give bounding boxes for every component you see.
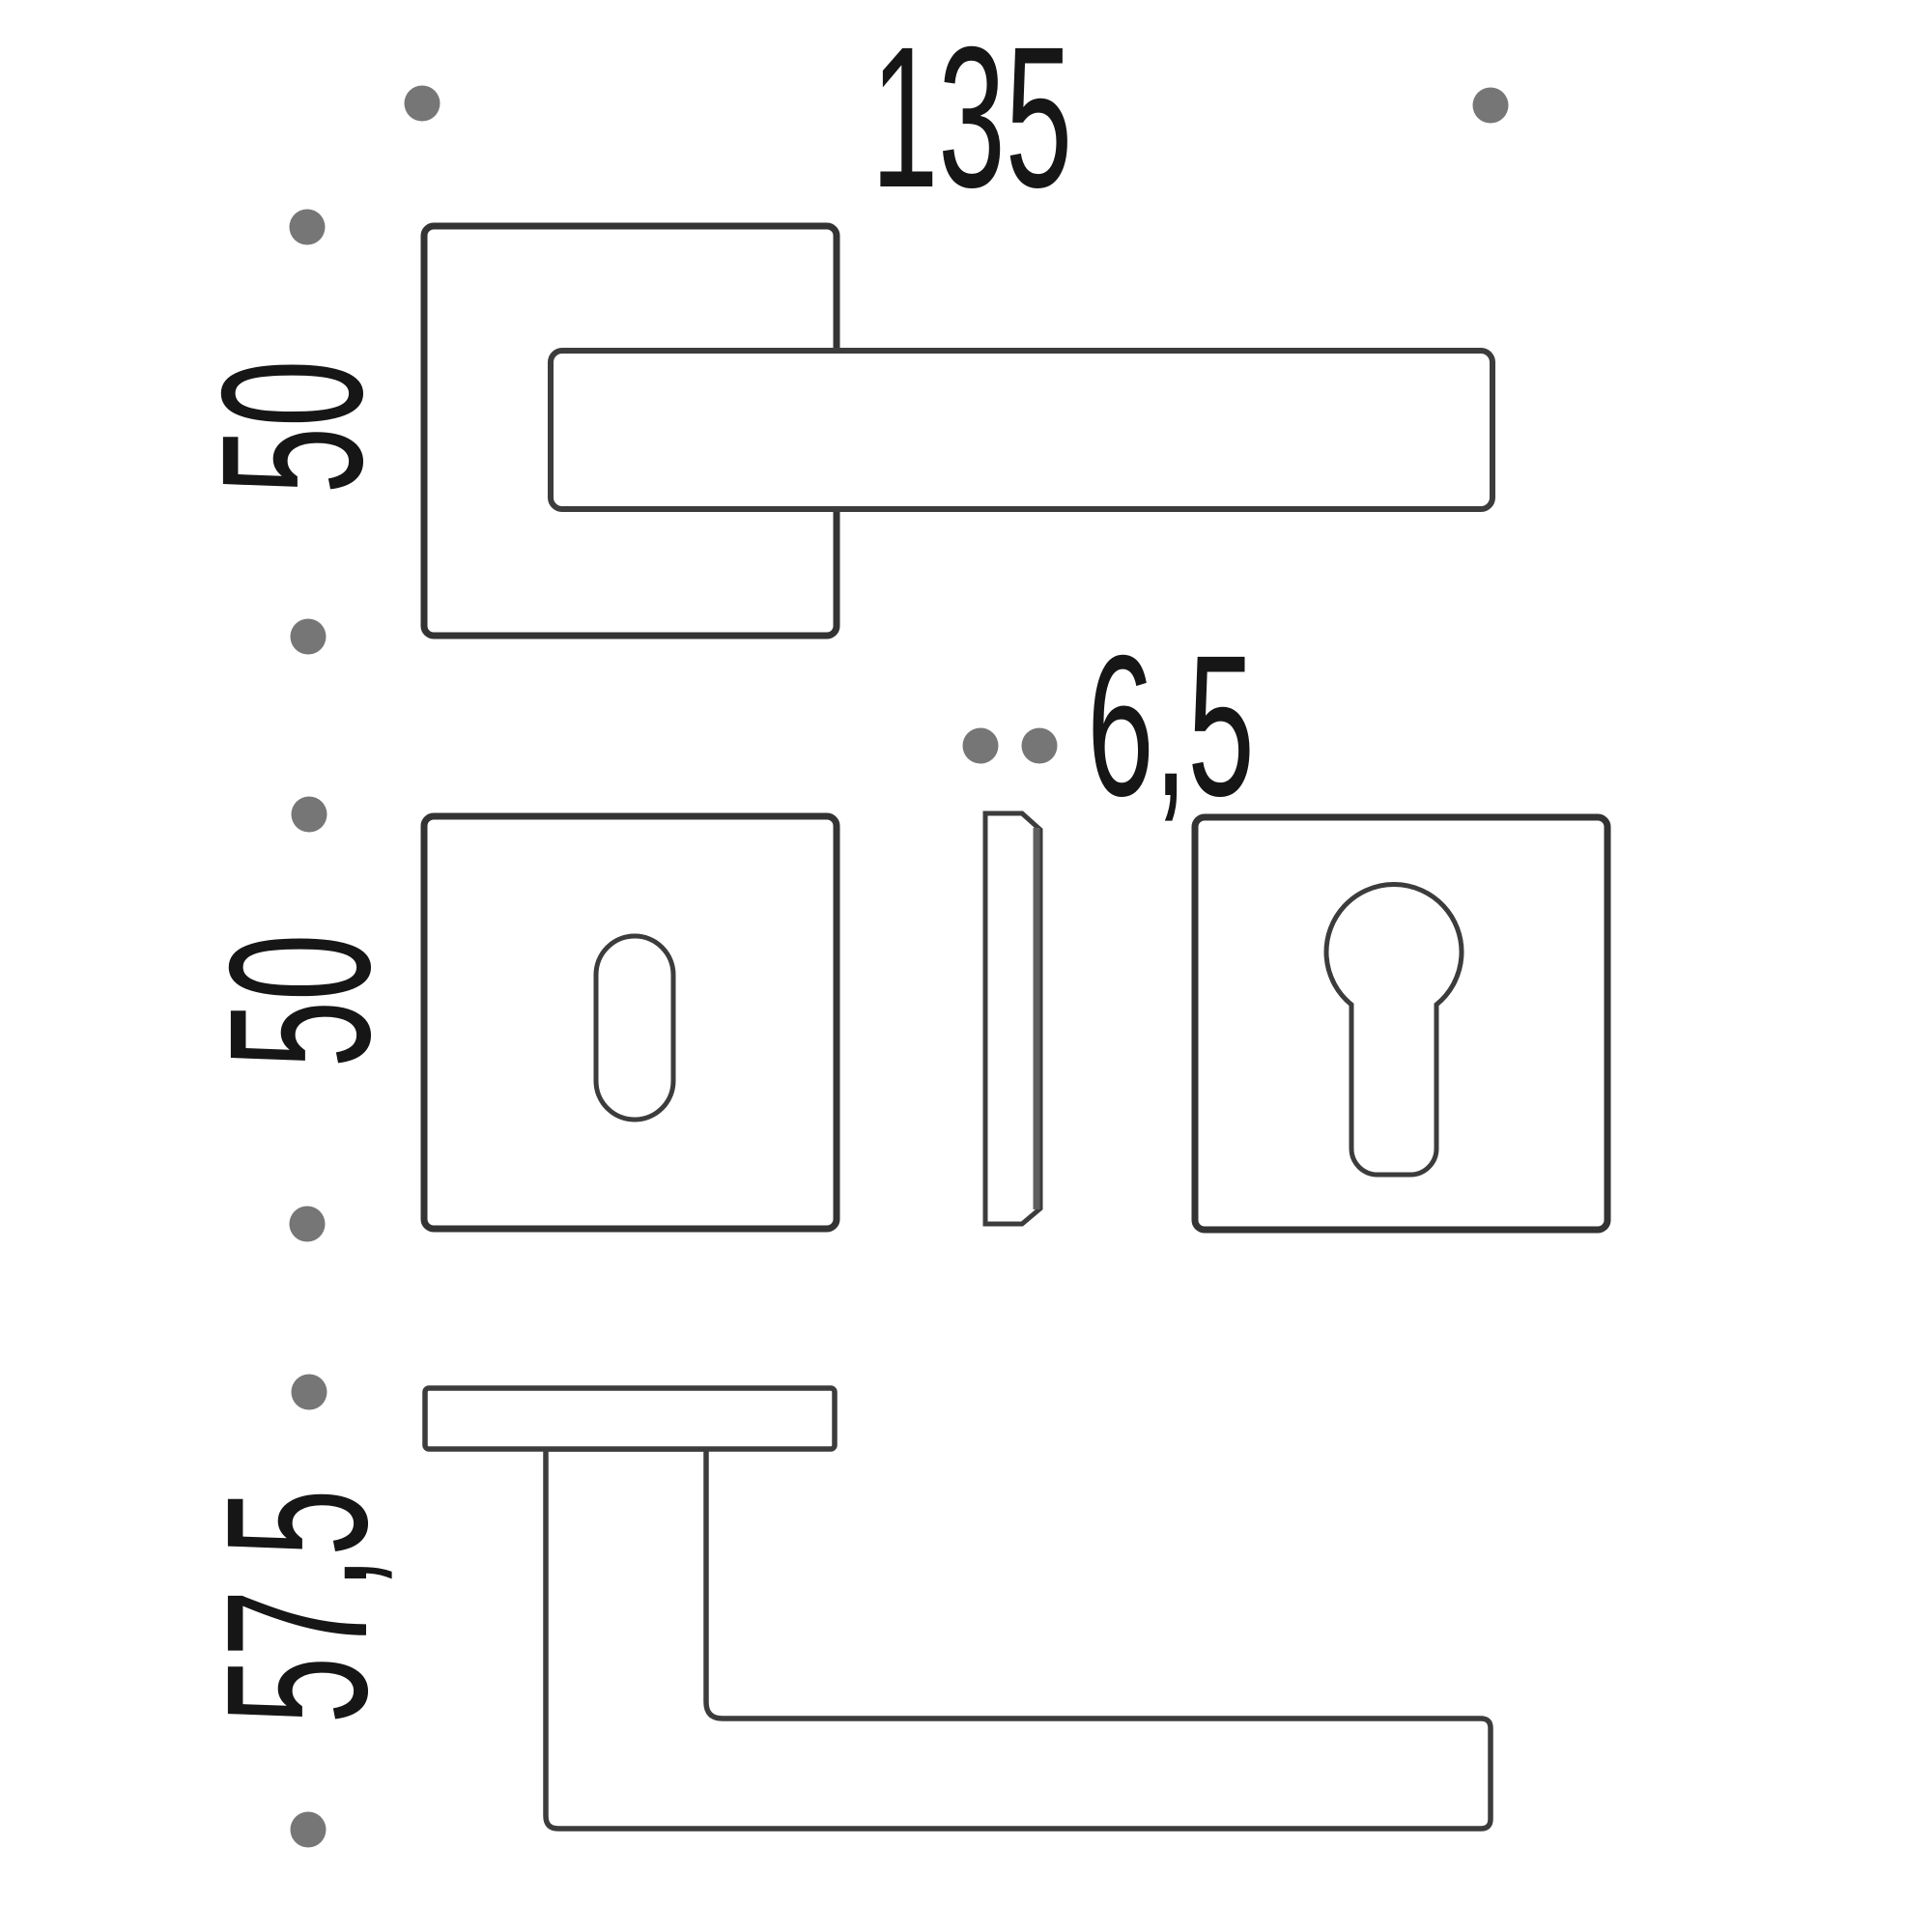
handle-side-profile	[546, 1449, 1491, 1829]
escutcheon-side-profile	[985, 813, 1040, 1224]
keyhole-slot	[596, 936, 673, 1120]
dimension-label-handle-length: 135	[871, 17, 1072, 218]
dimension-label-rose-size: 50	[192, 360, 393, 495]
escutcheon-row	[424, 813, 1607, 1230]
dimension-label-plate-thickness: 6,5	[1087, 626, 1254, 827]
side-view	[425, 1388, 1491, 1829]
front-view	[424, 226, 1492, 636]
dimension-label-escutcheon-size: 50	[200, 934, 401, 1068]
technical-drawing-canvas: 135 50 50 6,5 57,5	[0, 0, 1932, 1932]
lever-bar	[551, 351, 1492, 509]
dimension-label-projection: 57,5	[197, 1490, 398, 1724]
rose-side-plate	[425, 1388, 835, 1449]
